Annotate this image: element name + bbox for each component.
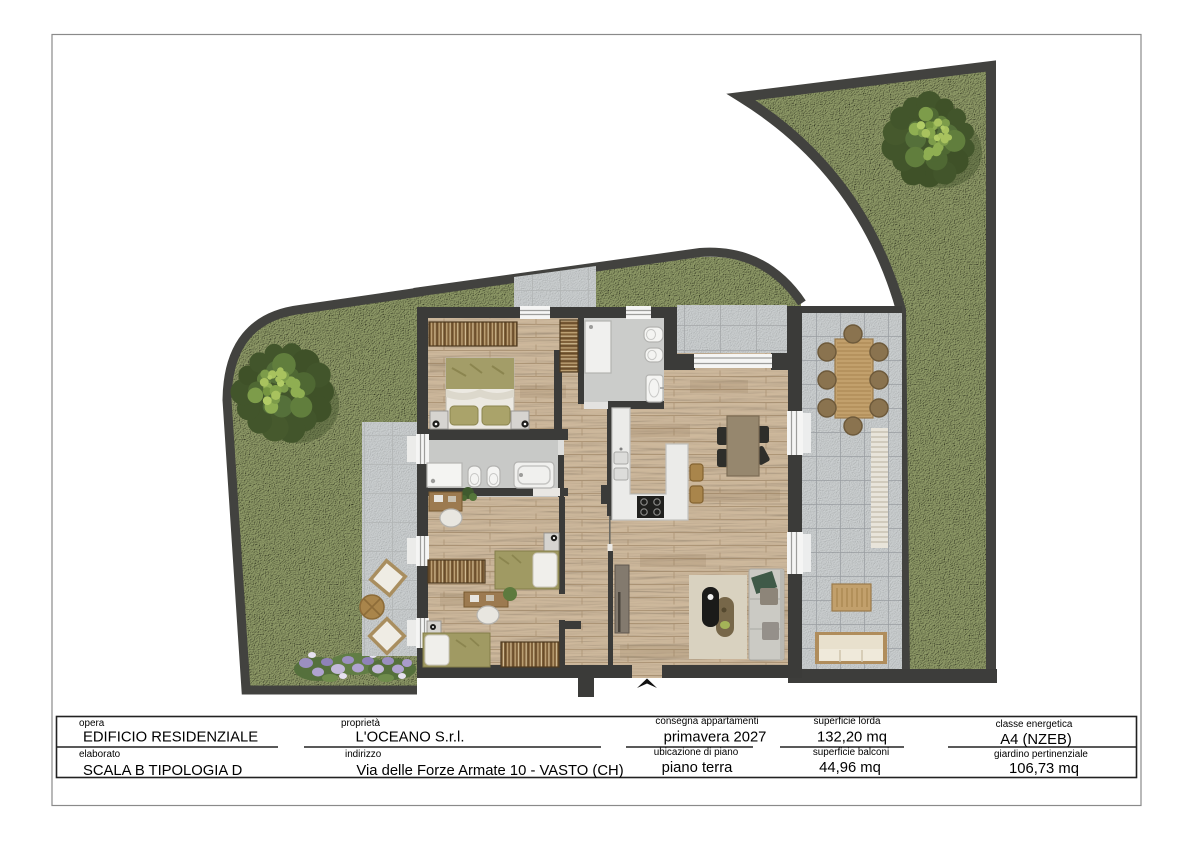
svg-text:elaborato: elaborato <box>79 749 121 760</box>
svg-text:Via delle Forze Armate 10 - VA: Via delle Forze Armate 10 - VASTO (CH) <box>356 763 623 779</box>
svg-text:ubicazione di piano: ubicazione di piano <box>654 747 739 758</box>
svg-text:giardino pertinenziale: giardino pertinenziale <box>994 749 1088 760</box>
svg-text:106,73 mq: 106,73 mq <box>1009 761 1079 777</box>
svg-text:indirizzo: indirizzo <box>345 749 382 760</box>
svg-text:superficie lorda: superficie lorda <box>814 716 881 727</box>
svg-text:primavera 2027: primavera 2027 <box>664 730 767 746</box>
svg-text:consegna appartamenti: consegna appartamenti <box>655 716 758 727</box>
svg-text:SCALA B TIPOLOGIA D: SCALA B TIPOLOGIA D <box>83 763 242 779</box>
svg-text:A4 (NZEB): A4 (NZEB) <box>1000 732 1072 748</box>
svg-text:EDIFICIO RESIDENZIALE: EDIFICIO RESIDENZIALE <box>83 730 258 746</box>
svg-text:superficie balconi: superficie balconi <box>813 747 889 758</box>
svg-text:132,20 mq: 132,20 mq <box>817 730 887 746</box>
svg-text:44,96 mq: 44,96 mq <box>819 760 881 776</box>
svg-text:opera: opera <box>79 718 105 729</box>
svg-text:classe energetica: classe energetica <box>996 719 1073 730</box>
svg-text:piano terra: piano terra <box>662 760 734 776</box>
svg-text:L'OCEANO S.r.l.: L'OCEANO S.r.l. <box>356 730 465 746</box>
svg-text:proprietà: proprietà <box>341 718 380 729</box>
